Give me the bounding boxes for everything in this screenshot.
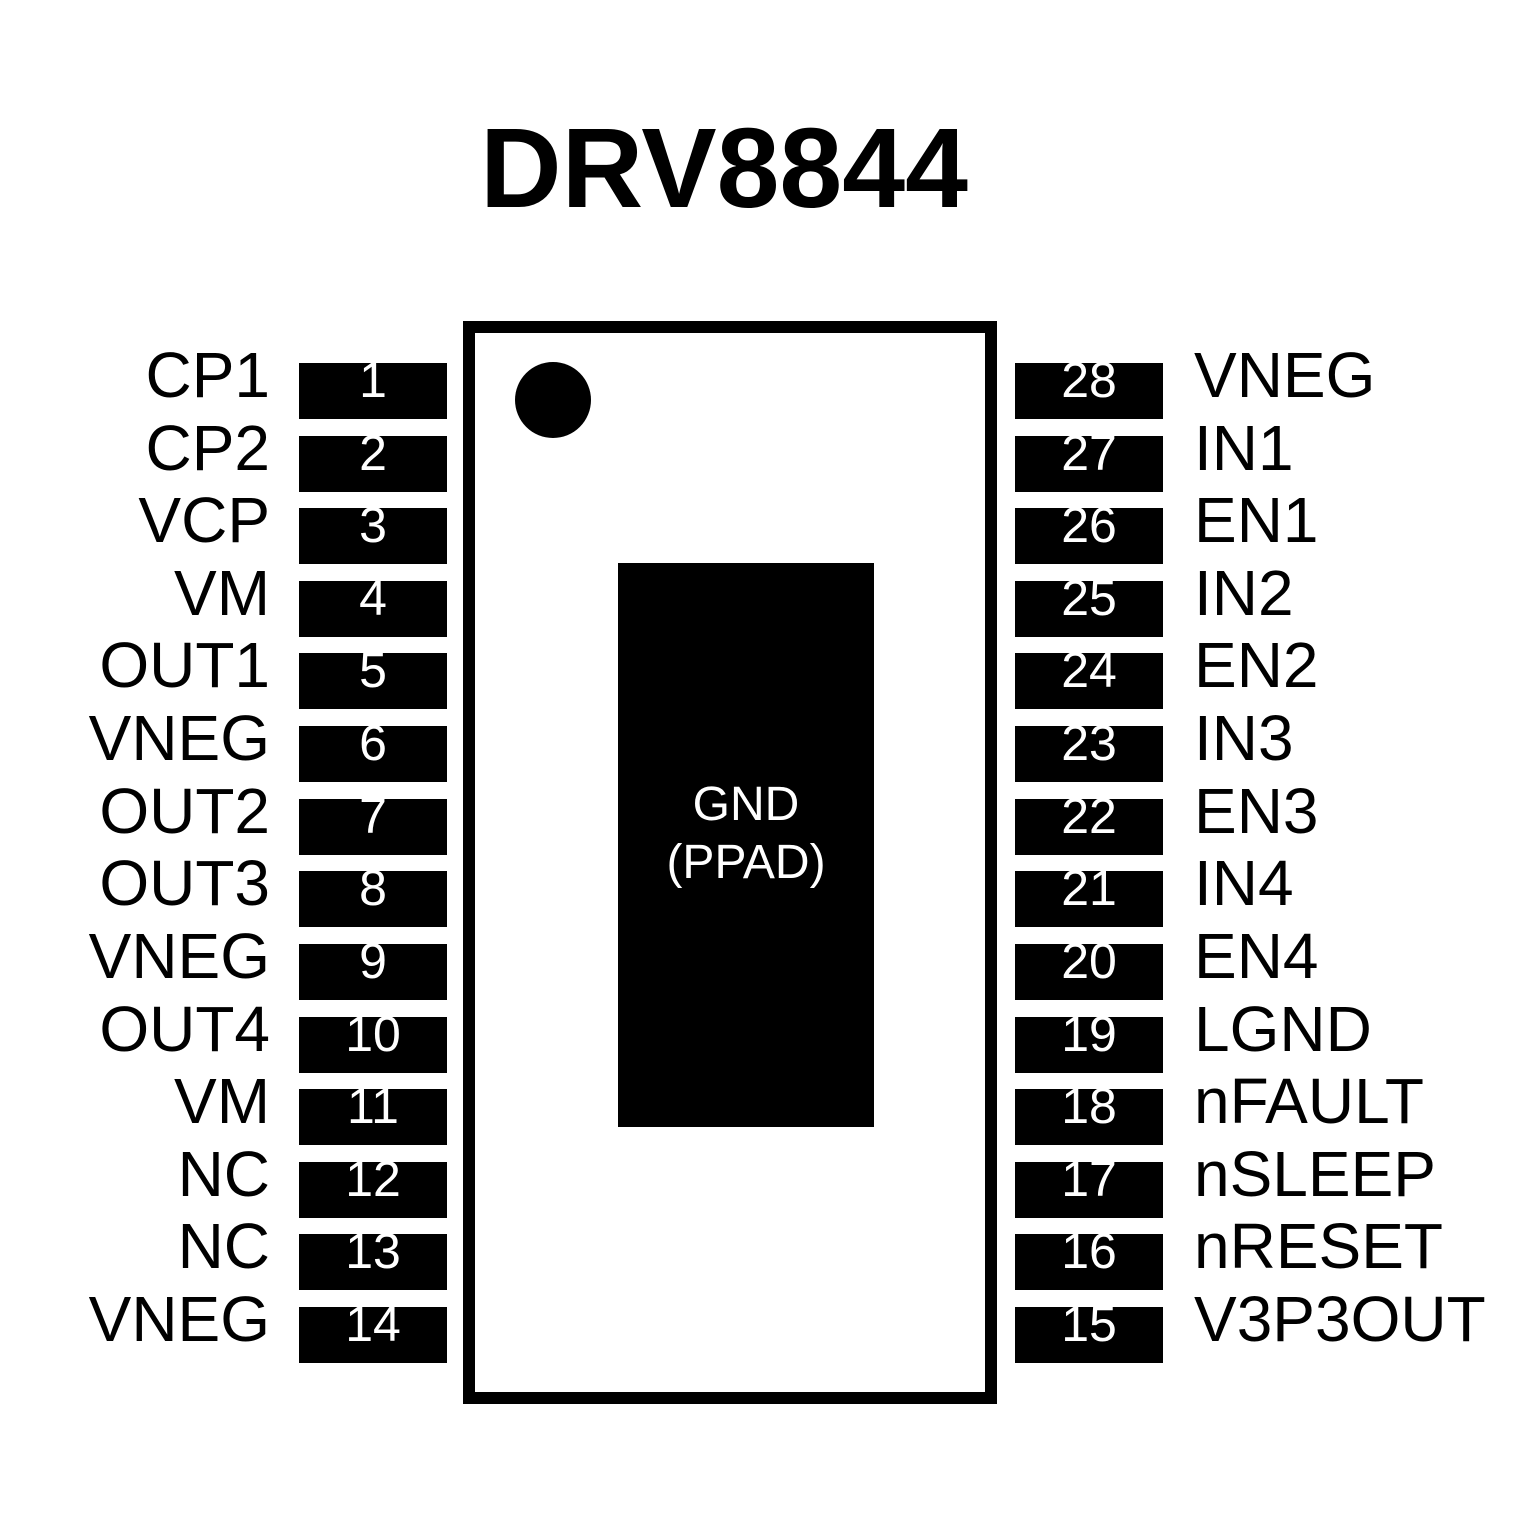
svg-text:24: 24 [1061,642,1117,698]
svg-text:NC: NC [178,1210,270,1282]
svg-text:7: 7 [359,788,387,844]
svg-text:VM: VM [174,557,270,629]
svg-text:IN1: IN1 [1194,412,1294,484]
svg-text:V3P3OUT: V3P3OUT [1194,1283,1486,1355]
svg-text:VNEG: VNEG [1194,339,1375,411]
svg-text:LGND: LGND [1194,993,1372,1065]
svg-text:EN4: EN4 [1194,920,1319,992]
svg-text:5: 5 [359,642,387,698]
svg-text:OUT4: OUT4 [99,993,270,1065]
svg-text:15: 15 [1061,1296,1117,1352]
svg-text:1: 1 [359,352,387,408]
svg-text:(PPAD): (PPAD) [666,836,825,889]
svg-text:28: 28 [1061,352,1117,408]
svg-text:21: 21 [1061,860,1117,916]
svg-text:20: 20 [1061,933,1117,989]
svg-text:OUT3: OUT3 [99,847,270,919]
svg-text:DRV8844: DRV8844 [480,105,968,231]
svg-text:19: 19 [1061,1006,1117,1062]
svg-text:11: 11 [347,1078,399,1134]
svg-text:VNEG: VNEG [89,1283,270,1355]
svg-text:4: 4 [359,570,387,626]
svg-text:12: 12 [345,1151,401,1207]
svg-text:VNEG: VNEG [89,702,270,774]
svg-text:3: 3 [359,497,387,553]
svg-text:13: 13 [345,1223,401,1279]
svg-text:EN2: EN2 [1194,629,1319,701]
svg-text:VNEG: VNEG [89,920,270,992]
svg-text:OUT2: OUT2 [99,775,270,847]
svg-text:GND: GND [693,778,800,831]
svg-text:10: 10 [345,1006,401,1062]
svg-text:25: 25 [1061,570,1117,626]
svg-text:17: 17 [1061,1151,1117,1207]
svg-text:22: 22 [1061,788,1117,844]
svg-text:IN4: IN4 [1194,847,1294,919]
svg-text:NC: NC [178,1138,270,1210]
svg-text:27: 27 [1061,425,1117,481]
svg-text:14: 14 [345,1296,401,1352]
svg-text:VM: VM [174,1065,270,1137]
svg-text:8: 8 [359,860,387,916]
svg-text:nFAULT: nFAULT [1194,1065,1424,1137]
svg-text:CP2: CP2 [146,412,271,484]
svg-text:16: 16 [1061,1223,1117,1279]
svg-text:VCP: VCP [138,484,270,556]
svg-text:9: 9 [359,933,387,989]
svg-text:6: 6 [359,715,387,771]
svg-text:IN3: IN3 [1194,702,1294,774]
svg-text:OUT1: OUT1 [99,629,270,701]
svg-text:CP1: CP1 [146,339,271,411]
svg-text:nRESET: nRESET [1194,1210,1443,1282]
svg-text:IN2: IN2 [1194,557,1294,629]
svg-text:EN1: EN1 [1194,484,1319,556]
svg-text:EN3: EN3 [1194,775,1319,847]
svg-text:2: 2 [359,425,387,481]
svg-text:23: 23 [1061,715,1117,771]
svg-text:nSLEEP: nSLEEP [1194,1138,1436,1210]
svg-text:18: 18 [1061,1078,1117,1134]
svg-text:26: 26 [1061,497,1117,553]
